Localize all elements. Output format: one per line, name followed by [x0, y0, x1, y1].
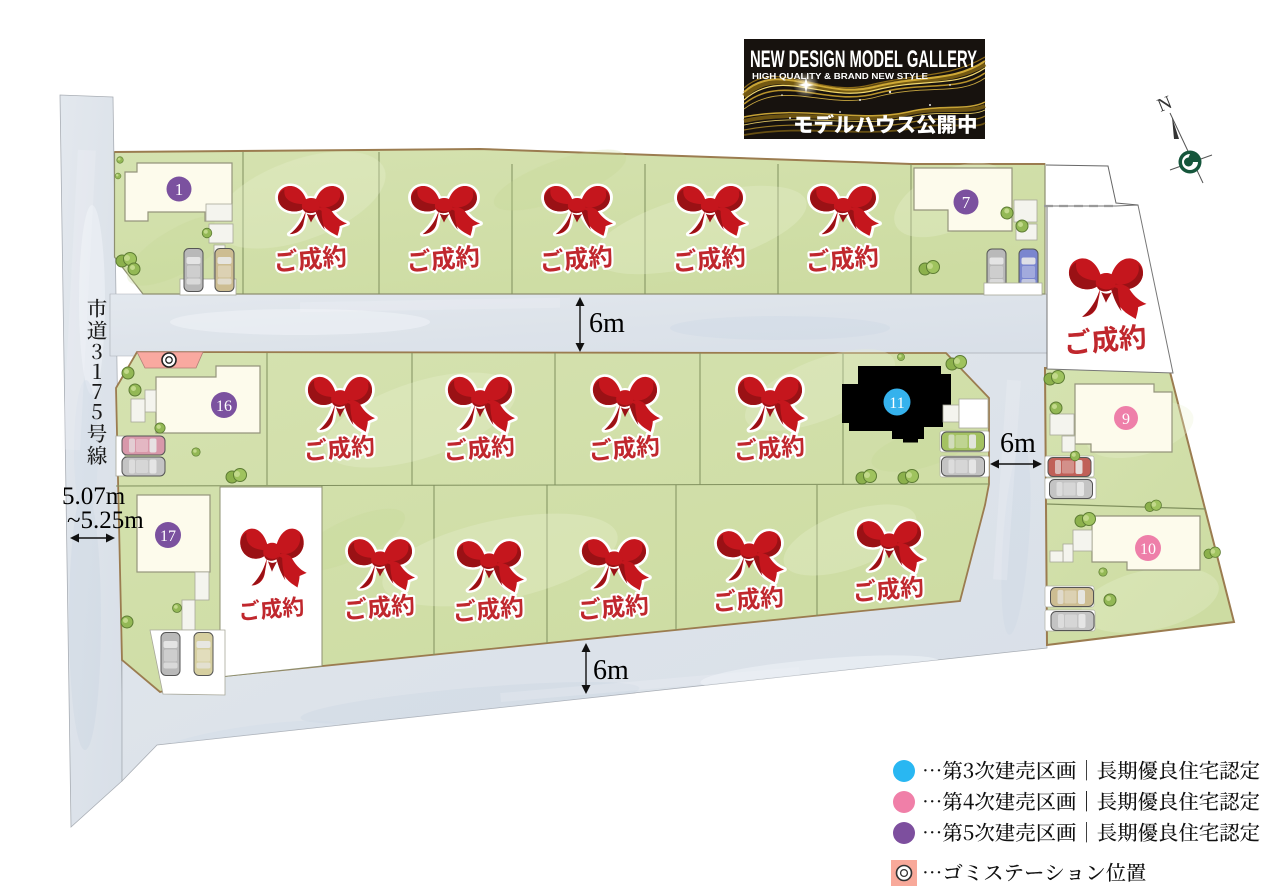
svg-text:HIGH QUALITY & BRAND NEW STYLE: HIGH QUALITY & BRAND NEW STYLE: [752, 72, 929, 81]
svg-text:16: 16: [216, 398, 232, 415]
svg-text:9: 9: [1122, 411, 1130, 428]
svg-text:10: 10: [1140, 541, 1156, 558]
svg-text:6m: 6m: [1000, 428, 1036, 459]
svg-text:NEW DESIGN MODEL GALLERY: NEW DESIGN MODEL GALLERY: [750, 46, 977, 73]
svg-text:5.07m: 5.07m: [62, 483, 126, 510]
svg-text:6m: 6m: [589, 308, 625, 339]
svg-text:N: N: [1155, 92, 1176, 117]
svg-text:11: 11: [889, 395, 904, 412]
svg-text:6m: 6m: [593, 655, 629, 686]
svg-text:17: 17: [160, 528, 176, 545]
svg-text:1: 1: [175, 180, 184, 199]
svg-text:7: 7: [962, 193, 971, 212]
svg-text:~5.25m: ~5.25m: [67, 507, 144, 534]
